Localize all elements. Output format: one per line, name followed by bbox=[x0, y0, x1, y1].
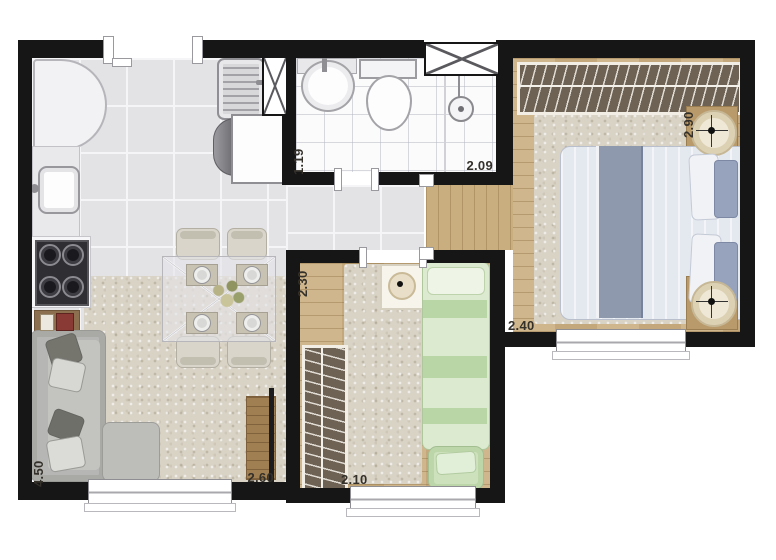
wall-bedroom2-top bbox=[286, 250, 365, 263]
cross-hatch-icon bbox=[264, 58, 286, 114]
bathroom-door-jamb bbox=[371, 168, 379, 191]
single-bed-pillow bbox=[427, 267, 485, 295]
sofa-chaise bbox=[102, 422, 160, 482]
blanket-stripe bbox=[423, 300, 487, 318]
dim-bedroom2-height: 2.30 bbox=[295, 263, 311, 297]
nightstand-lamp-icon bbox=[691, 281, 737, 327]
burner-icon bbox=[39, 276, 61, 298]
dim-living-height: 4.50 bbox=[31, 453, 47, 487]
bathroom-window-hatch bbox=[424, 42, 500, 76]
sink-faucet-icon bbox=[322, 58, 327, 72]
burner-icon bbox=[39, 244, 61, 266]
blanket-stripe bbox=[423, 356, 487, 378]
blanket-stripe bbox=[423, 408, 487, 424]
ventilation-shaft bbox=[262, 56, 288, 116]
wall-master-bottom bbox=[682, 332, 755, 347]
wall-master-bottom bbox=[505, 332, 558, 347]
lamp-center-dot bbox=[708, 298, 715, 305]
lamp-center-dot bbox=[708, 127, 715, 134]
wall-top bbox=[195, 40, 424, 58]
shower-head-icon bbox=[448, 96, 474, 122]
plate-icon bbox=[193, 314, 211, 332]
burner-icon bbox=[62, 276, 84, 298]
pouf-pillow bbox=[435, 451, 476, 476]
pedestal-sink bbox=[301, 60, 355, 112]
wall-left bbox=[18, 40, 32, 500]
hall-door-jamb bbox=[419, 247, 434, 260]
laundry-tank bbox=[217, 58, 265, 120]
decor-book-icon bbox=[56, 313, 74, 331]
nightstand-lamp-icon bbox=[691, 110, 737, 156]
lamp-center-dot bbox=[397, 281, 403, 287]
entry-door-leaf bbox=[112, 58, 132, 67]
flower-centerpiece-icon bbox=[206, 276, 248, 312]
living-window-sill bbox=[84, 503, 236, 512]
hall-floor bbox=[426, 185, 513, 250]
corridor-strip-floor bbox=[286, 185, 424, 250]
bedroom2-door-jamb bbox=[359, 247, 367, 268]
decor-frame-icon bbox=[40, 314, 54, 331]
dim-bathroom-width: 2.09 bbox=[451, 158, 493, 174]
bed-cushion bbox=[714, 160, 738, 218]
master-window-sill bbox=[552, 351, 690, 360]
wall-master-right bbox=[740, 40, 755, 347]
wall-bedroom2-right bbox=[490, 250, 505, 503]
bedroom2-window-sill bbox=[346, 508, 480, 517]
plate-icon bbox=[243, 314, 261, 332]
dim-bedroom2-width: 2.10 bbox=[341, 472, 381, 488]
dim-living-width: 2.60 bbox=[238, 470, 274, 486]
second-wardrobe bbox=[302, 345, 348, 493]
bathroom-door-jamb bbox=[334, 168, 342, 191]
hall-door-jamb bbox=[419, 174, 434, 187]
wall-bottom-living bbox=[18, 482, 90, 500]
cross-hatch-icon bbox=[426, 44, 498, 74]
sofa-pillow bbox=[45, 435, 86, 473]
dim-bathroom-height: 1.19 bbox=[291, 141, 307, 175]
washing-machine bbox=[231, 114, 285, 184]
dim-master-height: 2.90 bbox=[681, 104, 697, 138]
kitchen-sink bbox=[38, 166, 80, 214]
wall-bedroom2-bottom bbox=[300, 488, 352, 503]
wall-bedroom2-bottom bbox=[472, 488, 505, 503]
floor-plan: 4.50 2.60 1.19 2.09 2.90 2.40 2.30 2.10 bbox=[0, 0, 776, 560]
burner-icon bbox=[62, 244, 84, 266]
entry-door-jamb bbox=[192, 36, 203, 64]
dim-master-width: 2.40 bbox=[508, 318, 548, 334]
bed-blanket-band bbox=[596, 146, 643, 318]
wall-top bbox=[496, 40, 755, 58]
